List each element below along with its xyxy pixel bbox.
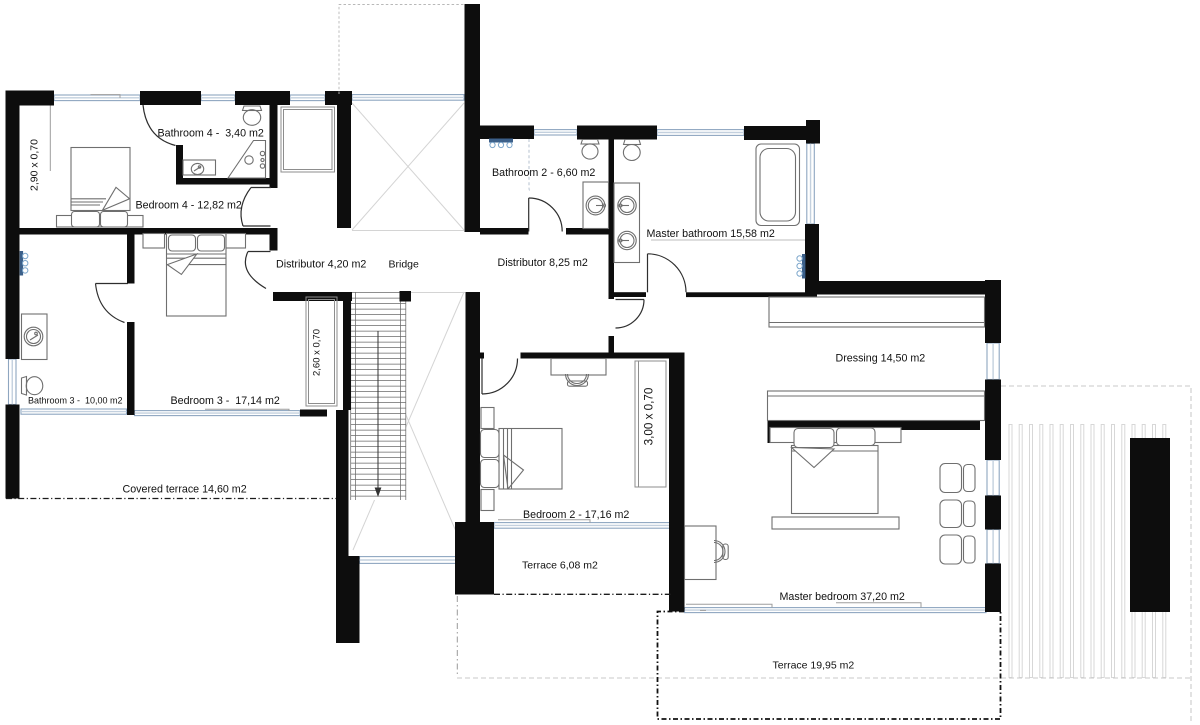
svg-text:2,90 x 0,70: 2,90 x 0,70 (29, 139, 41, 191)
svg-text:2,60 x 0,70: 2,60 x 0,70 (312, 329, 323, 376)
svg-text:Bathroom 2 - 6,60 m2: Bathroom 2 - 6,60 m2 (492, 167, 595, 179)
svg-text:Bedroom 3 - 17,14 m2: Bedroom 3 - 17,14 m2 (171, 395, 280, 407)
svg-text:Bathroom 3 - 10,00 m2: Bathroom 3 - 10,00 m2 (28, 396, 123, 406)
svg-text:Master bathroom 15,58 m2: Master bathroom 15,58 m2 (647, 228, 775, 240)
svg-text:Terrace 6,08 m2: Terrace 6,08 m2 (522, 560, 598, 572)
svg-text:Terrace 19,95 m2: Terrace 19,95 m2 (773, 660, 855, 672)
svg-text:Distributor 4,20 m2: Distributor 4,20 m2 (276, 259, 366, 271)
svg-text:Bridge: Bridge (389, 259, 420, 271)
svg-text:Master bedroom 37,20 m2: Master bedroom 37,20 m2 (780, 591, 905, 603)
svg-text:Dressing 14,50 m2: Dressing 14,50 m2 (836, 353, 926, 365)
svg-text:3,00 x 0,70: 3,00 x 0,70 (643, 387, 656, 445)
svg-text:Covered terrace 14,60 m2: Covered terrace 14,60 m2 (123, 484, 247, 496)
svg-text:Distributor 8,25 m2: Distributor 8,25 m2 (498, 257, 588, 269)
svg-text:Bathroom 4 - 3,40 m2: Bathroom 4 - 3,40 m2 (158, 128, 264, 140)
svg-text:Bedroom 4 - 12,82 m2: Bedroom 4 - 12,82 m2 (136, 200, 242, 212)
svg-text:Bedroom 2 - 17,16 m2: Bedroom 2 - 17,16 m2 (523, 509, 629, 521)
